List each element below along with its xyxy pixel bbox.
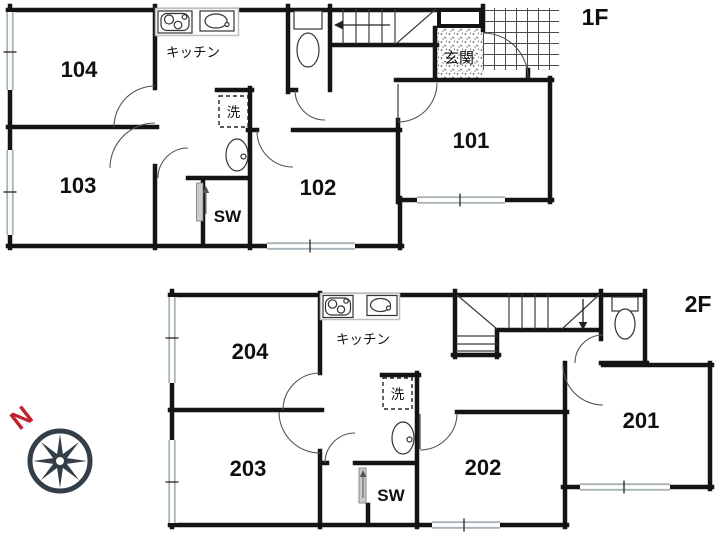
room-label-104: 104 (61, 57, 98, 82)
stove-icon (158, 11, 192, 33)
window-102 (267, 240, 355, 253)
laundry-label-1f: 洗 (227, 105, 241, 121)
entrance-label: 玄関 (444, 49, 474, 67)
window-204 (166, 297, 179, 383)
sink-icon-2f (367, 296, 397, 316)
sink-icon (200, 11, 234, 31)
room-label-101: 101 (453, 128, 490, 153)
closet-label-1f: SW (214, 207, 242, 226)
toilet-icon-1f (294, 11, 322, 67)
shoe-cabinet (439, 10, 481, 26)
stairs-2f (456, 294, 600, 351)
floor-label-1f: 1F (582, 4, 609, 30)
window-202 (432, 519, 500, 532)
compass-icon: N (5, 400, 90, 491)
room-label-103: 103 (60, 173, 97, 198)
room-label-201: 201 (623, 408, 660, 433)
porch-tile-hatch (483, 8, 559, 70)
laundry-label-2f: 洗 (391, 387, 405, 403)
washbasin-icon-2f (392, 422, 414, 454)
floor-plan-canvas: 104 103 102 101 キッチン 洗 SW 玄関 1F (0, 0, 716, 538)
stairs-down-arrow-icon (334, 21, 343, 30)
window-101 (417, 194, 505, 207)
room-label-204: 204 (232, 339, 269, 364)
window-103 (4, 150, 17, 235)
room-label-102: 102 (300, 175, 337, 200)
window-201 (580, 481, 670, 494)
floor-plan-2f: 204 203 202 201 キッチン 洗 SW 2F (166, 291, 713, 532)
stove-icon-2f (323, 296, 353, 318)
kitchen-counter-1f (156, 9, 239, 36)
floor-label-2f: 2F (685, 291, 712, 317)
north-label: N (5, 400, 39, 436)
window-104 (4, 12, 17, 90)
room-label-202: 202 (465, 455, 502, 480)
kitchen-label-2f: キッチン (336, 332, 390, 348)
room-label-203: 203 (230, 456, 267, 481)
kitchen-counter-2f (321, 294, 400, 320)
sliding-door-sw-1f (197, 183, 210, 221)
toilet-icon-2f (612, 297, 638, 339)
washbasin-icon-1f (226, 139, 248, 171)
closet-label-2f: SW (377, 486, 405, 505)
floor-plan-page: 104 103 102 101 キッチン 洗 SW 玄関 1F (0, 0, 716, 538)
floor-plan-1f: 104 103 102 101 キッチン 洗 SW 玄関 1F (4, 4, 609, 253)
window-203 (166, 440, 179, 523)
kitchen-label-1f: キッチン (166, 45, 220, 61)
stairs-1f (334, 9, 436, 44)
sliding-door-sw-2f (359, 468, 366, 503)
door-arcs-2f (279, 335, 603, 463)
